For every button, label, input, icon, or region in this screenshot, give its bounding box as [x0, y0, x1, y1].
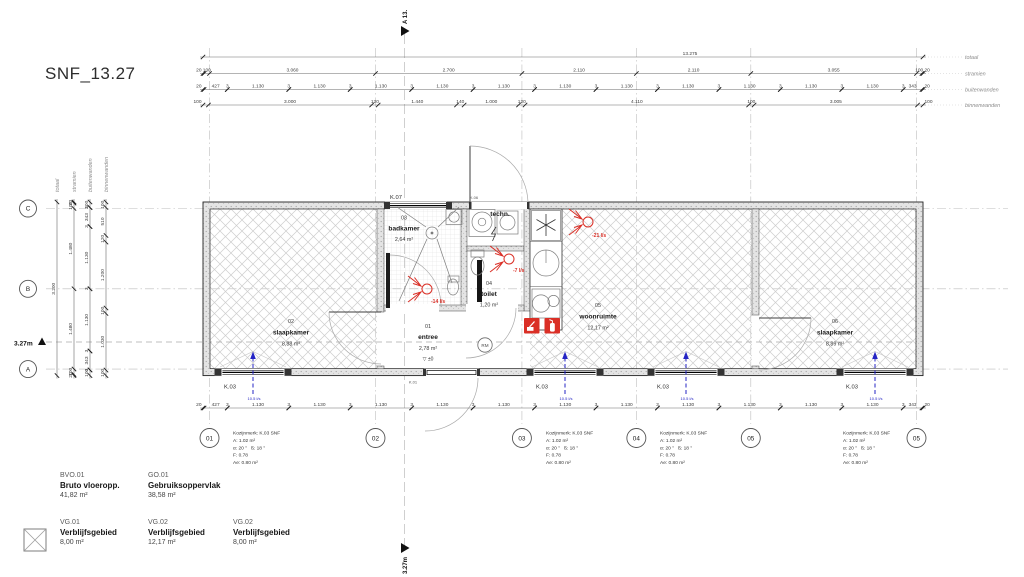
grid-bubble-col-label: 01 [206, 435, 214, 442]
dim-value: 3 [472, 402, 475, 408]
dim-value: 1.130 [436, 402, 448, 408]
dim-row-label: totaal [965, 55, 979, 61]
dim-value: 3 [349, 84, 352, 90]
kozijn-note-line: Kozijnmerk: K.03 SNF [546, 431, 593, 437]
grid-bubble-col-label: 05 [747, 435, 755, 442]
dim-value: 343 [84, 356, 90, 364]
dim-value: 1.130 [436, 84, 448, 90]
extract-rate-label: -14 l/s [431, 299, 445, 305]
dim-value: 1.130 [682, 402, 694, 408]
label-k03: K.03 [536, 385, 548, 391]
dim-value: 1.130 [805, 84, 817, 90]
svg-text:slaapkamer: slaapkamer [273, 330, 310, 337]
svg-text:05: 05 [595, 303, 601, 309]
dim-value: 1.130 [621, 402, 633, 408]
dim-value: 1.130 [252, 84, 264, 90]
dim-value: 427 [212, 402, 220, 408]
section-marker-bottom: 3.27m [403, 557, 409, 574]
dim-value: 120 [371, 99, 379, 105]
dim-value: 100 [203, 68, 211, 74]
svg-text:01: 01 [425, 324, 431, 330]
supply-rate-label: 10.5 l/s [248, 396, 261, 401]
dim-row-label: buitenwanden [965, 88, 999, 94]
kozijn-note: Kozijnmerk: K.03 SNFA: 1.02 m²α: 20 ° ß:… [233, 431, 280, 467]
supply-rate-label: 10.5 l/s [870, 396, 883, 401]
kozijn-note-line: F: 0.78 [660, 453, 675, 459]
svg-text:2,78 m²: 2,78 m² [419, 346, 437, 352]
dim-value: 20 [196, 68, 202, 74]
kozijn-note-line: F: 0.78 [546, 453, 561, 459]
dim-value: 1.130 [805, 402, 817, 408]
label-k07: K.07 [390, 195, 402, 201]
dim-value: 20 [925, 84, 931, 90]
dim-value: 100 [925, 99, 933, 105]
dim-value: 120 [100, 234, 106, 242]
dim-value: 1.130 [313, 84, 325, 90]
dim-value: 3.000 [284, 99, 296, 105]
supply-rate-label: 10.5 l/s [681, 396, 694, 401]
dim-value: 20 [925, 68, 931, 74]
grid-bubble-col-label: 05 [913, 435, 921, 442]
dim-col-label: binnenwanden [104, 157, 110, 192]
dim-value: 1.130 [559, 84, 571, 90]
kozijn-note: Kozijnmerk: K.03 SNFA: 1.02 m²α: 20 ° ß:… [660, 431, 707, 467]
svg-text:03: 03 [401, 216, 407, 222]
svg-text:1,20 m²: 1,20 m² [480, 303, 498, 309]
dim-value: 1.130 [313, 402, 325, 408]
hatch-woonruimte [562, 209, 752, 369]
dim-value: 3 [472, 84, 475, 90]
dim-value: 1.130 [84, 251, 90, 263]
dim-value: 100 [915, 68, 923, 74]
legend-vg-02: VG.02 Verblijfsgebied 12,17 m² [148, 519, 205, 546]
opening-badkamer-door [386, 304, 439, 312]
section-marker-top: A 13. [403, 10, 409, 24]
grid-bubble-row-label: B [26, 286, 30, 293]
wall-slaapkamer06 [752, 209, 759, 315]
dim-row-label: binnenwanden [965, 103, 1000, 109]
grid-bubble-col-label: 04 [633, 435, 641, 442]
dim-value: 4.110 [631, 99, 643, 105]
dim-value: 3 [226, 402, 229, 408]
svg-text:2,64 m²: 2,64 m² [395, 237, 413, 243]
dim-value: 100 [747, 99, 755, 105]
extract-vent [504, 254, 514, 264]
svg-text:04: 04 [486, 281, 492, 287]
entree-door-leaf [427, 370, 476, 374]
dim-value: 1.130 [744, 402, 756, 408]
svg-text:02: 02 [288, 319, 294, 325]
dim-value: 1.440 [411, 99, 423, 105]
dim-value: 1.480 [68, 242, 74, 254]
dim-value: 100 [193, 99, 201, 105]
opening-techn-door [470, 202, 528, 210]
entree-door-arc [425, 378, 478, 431]
kozijn-note-line: Kozijnmerk: K.03 SNF [660, 431, 707, 437]
svg-text:techn.: techn. [490, 211, 510, 218]
floorplan-sheet: SNF_13.27 [0, 0, 1024, 577]
dim-value: 3 [840, 84, 843, 90]
dim-value: 20 [196, 402, 202, 408]
svg-text:06: 06 [832, 319, 838, 325]
smoke-detector-label: RM [481, 343, 488, 348]
kozijn-note-line: A: 1.02 m² [843, 438, 866, 444]
dim-value: 1.130 [375, 402, 387, 408]
dim-value: 20 [925, 402, 931, 408]
grid-bubble-col-label: 02 [372, 435, 380, 442]
kozijn-note-line: α: 20 ° ß: 18 ° [843, 445, 875, 451]
dim-value: 510 [100, 217, 106, 225]
dim-value: 3 [779, 402, 782, 408]
svg-text:8,88 m²: 8,88 m² [282, 342, 300, 348]
label-k03: K.03 [224, 385, 236, 391]
dim-value: 2.700 [443, 68, 455, 74]
legend-vg-01: VG.01 Verblijfsgebied 8,00 m² [60, 519, 117, 546]
fire-blanket-icon [524, 318, 540, 334]
section-marker-bottom-triangle [401, 543, 410, 553]
dim-value: 3 [533, 402, 536, 408]
dim-value: 2.110 [688, 68, 700, 74]
kozijn-note-line: A: 1.02 m² [546, 438, 569, 444]
dim-value: 1.130 [498, 402, 510, 408]
svg-text:entree: entree [418, 334, 438, 341]
dim-value: 1.130 [559, 402, 571, 408]
dim-value: 3 [226, 84, 229, 90]
dim-value: 100 [84, 368, 90, 376]
dim-value: 1.000 [485, 99, 497, 105]
dim-value: 3 [595, 402, 598, 408]
label-k03: K.03 [657, 385, 669, 391]
kozijn-note-line: F: 0.78 [843, 453, 858, 459]
extract-rate-label: -7 l/s [513, 268, 525, 274]
label-k03: K.03 [846, 385, 858, 391]
room-label-toilet: 04 toilet 1,20 m² [480, 281, 498, 309]
kozijn-note-line: Ae: 0.80 m² [660, 460, 685, 466]
legend-vg-03: VG.02 Verblijfsgebied 8,00 m² [233, 519, 290, 546]
badkamer-door-leaf [386, 253, 390, 308]
dim-value: 140 [456, 99, 464, 105]
dim-value: 3.005 [830, 99, 842, 105]
dim-value: 3 [533, 84, 536, 90]
kozijn-note-line: Ae: 0.80 m² [843, 460, 868, 466]
dim-value: 1.130 [867, 84, 879, 90]
kozijn-note: Kozijnmerk: K.03 SNFA: 1.02 m²α: 20 ° ß:… [546, 431, 593, 467]
section-marker-top-triangle [401, 26, 410, 36]
dim-value: 3 [718, 402, 721, 408]
floor-hatches [210, 209, 916, 369]
kozijn-note-line: A: 1.02 m² [233, 438, 256, 444]
dim-value: 3 [779, 84, 782, 90]
dim-value: 1.480 [68, 323, 74, 335]
dim-value: 100 [68, 201, 74, 209]
level-marker-triangle [38, 338, 46, 346]
dim-value: 343 [909, 402, 917, 408]
dim-value: 3 [84, 349, 90, 352]
dim-value: 3 [902, 402, 905, 408]
dim-col-label: buitenwanden [88, 158, 94, 192]
dim-value: 3 [718, 84, 721, 90]
svg-text:badkamer: badkamer [388, 226, 420, 233]
level-marker-left: 3.27m [14, 341, 33, 348]
kozijn-annotations: Kozijnmerk: K.03 SNFA: 1.02 m²α: 20 ° ß:… [233, 431, 890, 467]
kozijn-note-line: α: 20 ° ß: 18 ° [660, 445, 692, 451]
toilet-door-arc [466, 308, 516, 358]
dim-value: 3 [84, 225, 90, 228]
dim-value: 20 [68, 372, 74, 378]
dim-value: 100 [100, 200, 106, 208]
label-k06: K.06 [470, 195, 479, 200]
dim-value: 1.130 [867, 402, 879, 408]
svg-text:12,17 m²: 12,17 m² [587, 326, 608, 332]
grid-bubble-col-label: 03 [518, 435, 526, 442]
techn-door-arc [470, 146, 528, 202]
entree-door [423, 369, 480, 431]
svg-text:toilet: toilet [481, 291, 498, 298]
kozijn-note-line: F: 0.78 [233, 453, 248, 459]
kozijn-note-line: Ae: 0.80 m² [546, 460, 571, 466]
dim-value: 1.130 [621, 84, 633, 90]
dim-value: 3.055 [828, 68, 840, 74]
dim-value: 1.130 [84, 314, 90, 326]
kozijn-note-line: α: 20 ° ß: 18 ° [233, 445, 265, 451]
dim-value: 3 [287, 402, 290, 408]
dim-value: 1.200 [100, 269, 106, 281]
dim-value: 343 [84, 213, 90, 221]
dim-col-label: stramien [72, 171, 78, 192]
dim-value: 100 [100, 368, 106, 376]
room-label-entree: 01 entree 2,78 m² ▽ ±0 [418, 324, 438, 363]
dim-row-label: stramien [965, 72, 986, 78]
dim-value: 3 [656, 84, 659, 90]
top-openings [384, 146, 530, 209]
grid-bubble-row-label: C [26, 206, 31, 213]
svg-text:woonruimte: woonruimte [578, 314, 617, 321]
entree-level-marker: ▽ ±0 [423, 357, 434, 363]
room-label-techn: techn. [490, 211, 510, 218]
dim-value: 3 [902, 84, 905, 90]
dim-value: 3.200 [51, 282, 57, 294]
kozijn-note-line: Kozijnmerk: K.03 SNF [233, 431, 280, 437]
dim-value: 1.130 [252, 402, 264, 408]
dim-value: 100 [100, 306, 106, 314]
supply-rate-label: 10.5 l/s [560, 396, 573, 401]
dim-value: 3 [349, 402, 352, 408]
kozijn-note-line: A: 1.02 m² [660, 438, 683, 444]
extract-rate-label: -21 l/s [592, 233, 606, 239]
svg-text:slaapkamer: slaapkamer [817, 330, 854, 337]
verblijfsgebied-hatch-icon [23, 528, 47, 552]
smoke-detector: RM [478, 338, 492, 352]
legend-bvo: BVO.01 Bruto vloeropp. 41,82 m² [60, 472, 120, 499]
dim-value: 3 [656, 402, 659, 408]
dim-value: 3 [287, 84, 290, 90]
label-k01: K.01 [409, 380, 418, 385]
kozijn-note-line: Ae: 0.80 m² [233, 460, 258, 466]
dim-value: 1.130 [375, 84, 387, 90]
svg-text:8,89 m²: 8,89 m² [826, 342, 844, 348]
kitchen [530, 209, 562, 330]
dim-value: 3 [840, 402, 843, 408]
hatch-woonruimte-2 [530, 332, 562, 369]
dim-value: 2.110 [573, 68, 585, 74]
legend-go: GO.01 Gebruiksoppervlak 38,58 m² [148, 472, 220, 499]
dim-col-label: totaal [55, 178, 61, 192]
extract-arrow [490, 262, 503, 272]
dim-value: 1.130 [682, 84, 694, 90]
dim-value: 427 [212, 84, 220, 90]
grid-bubble-row-label: A [26, 366, 31, 373]
wall-slaapkamer02 [377, 209, 384, 312]
dim-value: 3 [84, 206, 90, 209]
dim-value: 343 [909, 84, 917, 90]
kozijn-note: Kozijnmerk: K.03 SNFA: 1.02 m²α: 20 ° ß:… [843, 431, 890, 467]
dim-value: 3 [595, 84, 598, 90]
dim-value: 3.060 [286, 68, 298, 74]
wall-toilet-keuken [524, 209, 530, 311]
dim-value: 13.275 [683, 51, 698, 57]
dim-value: 3 [410, 402, 413, 408]
kozijn-note-line: Kozijnmerk: K.03 SNF [843, 431, 890, 437]
dim-value: 20 [196, 84, 202, 90]
dim-value: 1.130 [498, 84, 510, 90]
kozijn-note-line: α: 20 ° ß: 18 ° [546, 445, 578, 451]
dim-value: 3 [84, 287, 90, 290]
dim-value: 1.130 [744, 84, 756, 90]
dim-value: 120 [518, 99, 526, 105]
dim-value: 1.030 [100, 335, 106, 347]
dim-value: 3 [410, 84, 413, 90]
